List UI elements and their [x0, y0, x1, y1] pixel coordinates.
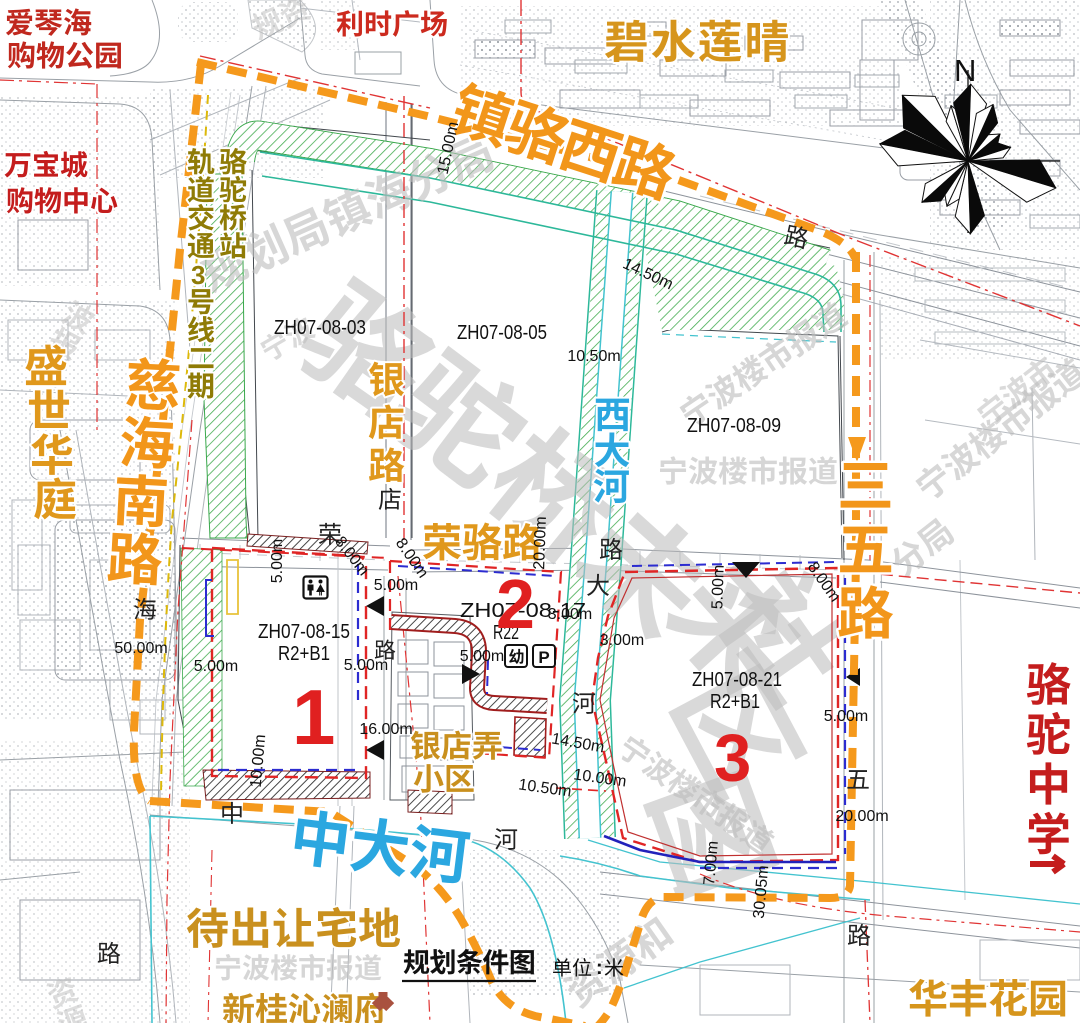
- svg-text:ZH07-08-21: ZH07-08-21: [692, 669, 782, 691]
- svg-text:5.00m: 5.00m: [460, 648, 504, 665]
- svg-text:5.00m: 5.00m: [269, 539, 286, 583]
- svg-text:5.00m: 5.00m: [709, 565, 728, 610]
- svg-text:ZH07-08-15: ZH07-08-15: [258, 621, 350, 643]
- svg-text:3.00m: 3.00m: [600, 632, 644, 649]
- svg-text:20.00m: 20.00m: [531, 516, 550, 570]
- svg-text:R2+B1: R2+B1: [278, 643, 330, 665]
- svg-text:2: 2: [496, 565, 535, 643]
- svg-text:3: 3: [714, 721, 751, 796]
- svg-text:P: P: [538, 648, 549, 667]
- svg-text:50.00m: 50.00m: [114, 640, 167, 657]
- svg-text:ZH07-08-03: ZH07-08-03: [274, 317, 366, 339]
- svg-text:N: N: [954, 53, 976, 88]
- svg-text:5.00m: 5.00m: [344, 657, 388, 674]
- svg-text:10.50m: 10.50m: [567, 348, 620, 365]
- svg-text:ZH07-08-05: ZH07-08-05: [457, 322, 547, 344]
- svg-text:5.00m: 5.00m: [194, 658, 238, 675]
- svg-text:16.00m: 16.00m: [359, 721, 412, 738]
- svg-text:ZH07-08-09: ZH07-08-09: [687, 415, 781, 437]
- svg-text:20.00m: 20.00m: [835, 808, 888, 825]
- svg-text:1: 1: [292, 673, 335, 761]
- svg-text:R2+B1: R2+B1: [710, 691, 760, 713]
- svg-text::: :: [596, 957, 603, 979]
- svg-text:3: 3: [191, 260, 205, 290]
- svg-text:5.00m: 5.00m: [374, 577, 418, 594]
- svg-text:5.00m: 5.00m: [824, 708, 868, 725]
- svg-text:3.00m: 3.00m: [548, 606, 592, 623]
